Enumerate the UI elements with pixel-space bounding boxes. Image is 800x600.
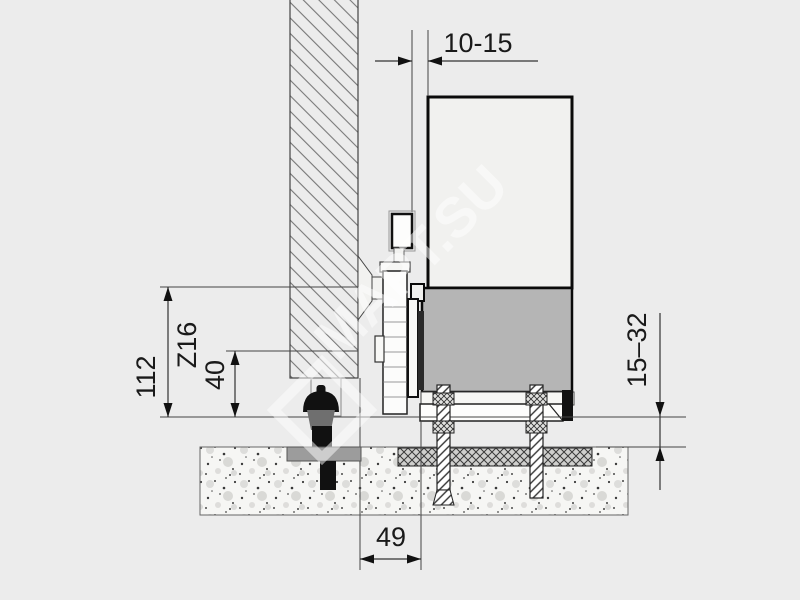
anchor-rod-foot	[433, 490, 454, 505]
rail-end-plate	[562, 390, 573, 421]
guide-rail	[422, 288, 572, 392]
technical-drawing: 10-15 112 Z16 40 15–32 49 МАРТ.SU	[0, 0, 800, 600]
dim-label-clearance: 15–32	[622, 312, 652, 387]
dim-label-height-total: 112	[131, 355, 161, 398]
anchor-nut	[526, 393, 547, 405]
rail-inner-wall	[418, 311, 424, 390]
dim-label-top-gap: 10-15	[443, 28, 512, 58]
guide-plate	[408, 299, 418, 397]
roller-stem-embedded	[320, 461, 336, 490]
gate-section-svg: 10-15 112 Z16 40 15–32 49 МАРТ.SU	[0, 0, 800, 600]
anchor-nut	[433, 393, 454, 405]
anchor-nut	[526, 421, 547, 433]
embedded-channel	[398, 448, 592, 466]
dim-label-height-small: 40	[200, 360, 230, 390]
dim-label-bracket-code: Z16	[172, 322, 202, 369]
dim-label-offset: 49	[376, 522, 406, 552]
anchor-nut	[433, 421, 454, 433]
